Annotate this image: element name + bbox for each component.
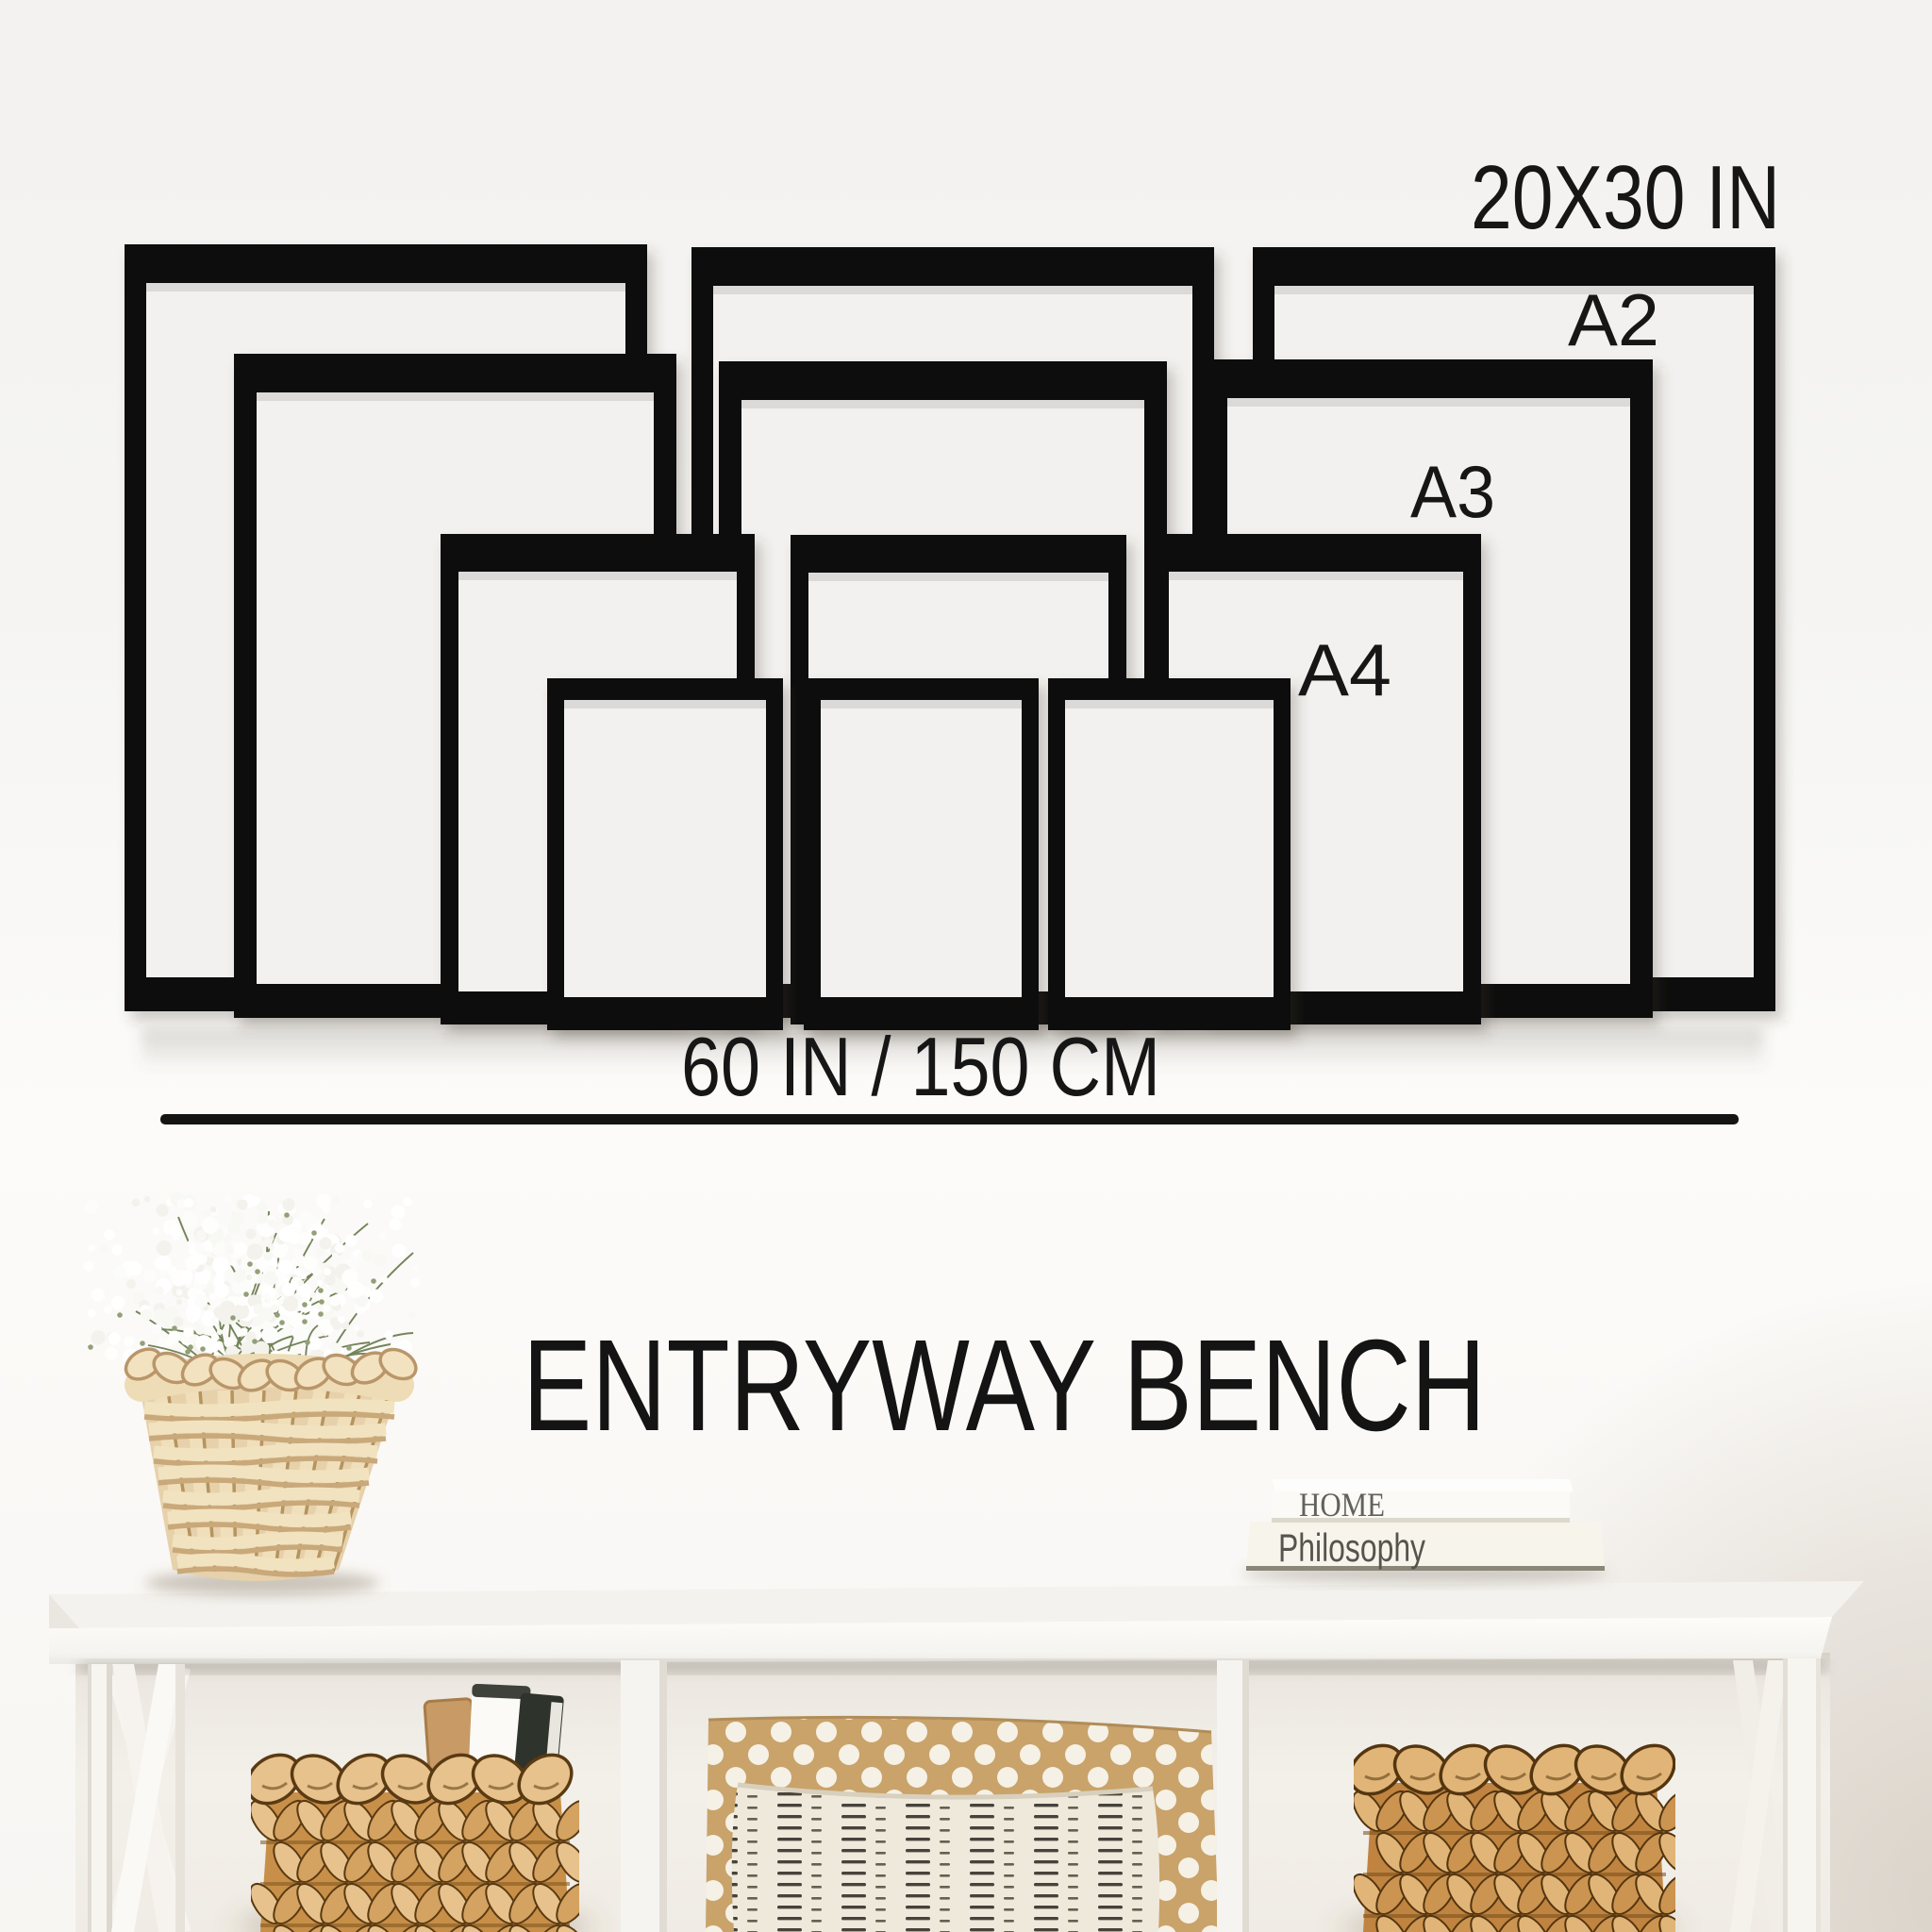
svg-text:60 IN / 150 CM: 60 IN / 150 CM [681,1020,1160,1113]
svg-text:ENTRYWAY BENCH: ENTRYWAY BENCH [523,1313,1486,1458]
svg-text:A3: A3 [1410,450,1495,533]
svg-text:A2: A2 [1568,278,1659,361]
svg-text:HOME: HOME [1299,1486,1385,1524]
svg-text:A4: A4 [1298,628,1391,711]
svg-text:20X30 IN: 20X30 IN [1471,147,1780,248]
svg-text:Philosophy: Philosophy [1278,1525,1425,1570]
